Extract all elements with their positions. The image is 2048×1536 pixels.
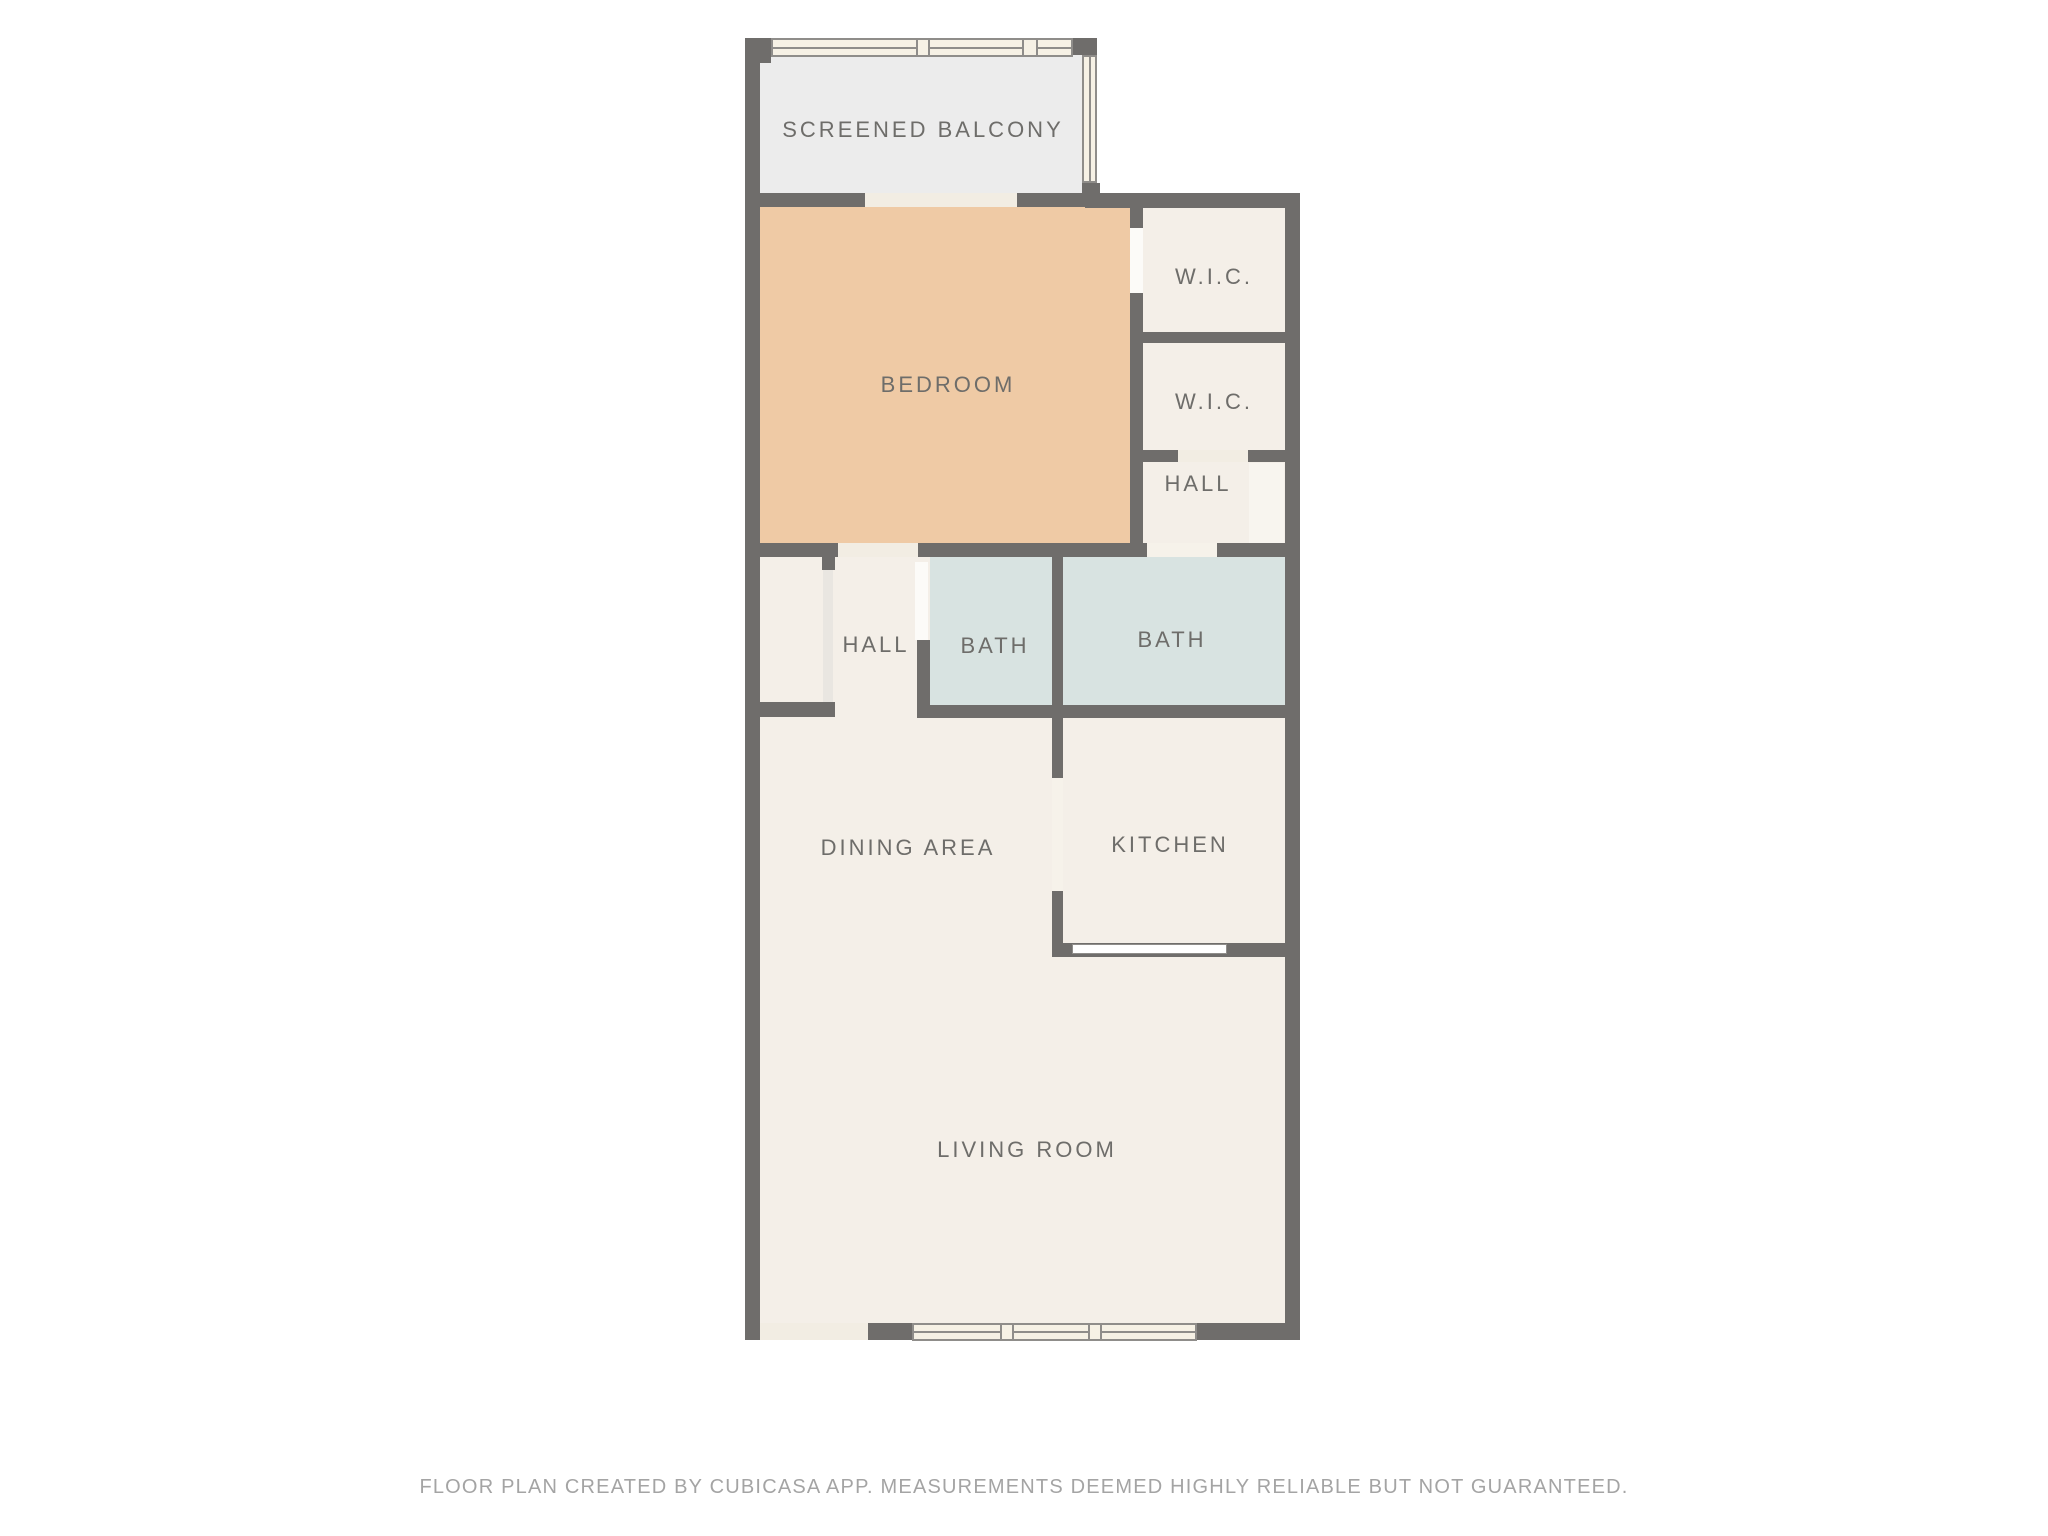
door-bedroom-opening [838, 543, 918, 557]
window-balcony-top [771, 38, 1073, 57]
hall-upper-door-leaf [1249, 463, 1284, 545]
wall-closet-nib [822, 543, 835, 570]
floor-plan-canvas: SCREENED BALCONY BEDROOM W.I.C. W.I.C. H… [0, 0, 2048, 1536]
wall-mid-right [1217, 543, 1300, 557]
room-label-wic-1: W.I.C. [1175, 264, 1253, 290]
wall-baths-bottom [917, 705, 1300, 718]
room-label-hall-upper: HALL [1164, 471, 1231, 497]
wall-bedroom-wic-nib [1130, 208, 1143, 228]
footer-disclaimer: FLOOR PLAN CREATED BY CUBICASA APP. MEAS… [0, 1476, 2048, 1499]
wall-wic2-bottom-left [1130, 450, 1178, 462]
wall-wic-divider [1130, 332, 1285, 343]
room-label-dining-area: DINING AREA [821, 835, 996, 861]
window-pane-line [1089, 57, 1091, 181]
wall-balcony-top-left-corner [760, 38, 771, 63]
room-label-bath-2: BATH [1137, 627, 1206, 653]
wall-right-outer [1285, 193, 1300, 1340]
door-wic1-leaf [1130, 228, 1143, 293]
door-bath1-leaf [915, 562, 928, 640]
door-closet-leaf [823, 570, 833, 702]
wall-left-outer [745, 38, 760, 1340]
wall-balcony-bottom-left [745, 193, 865, 207]
door-wic2-opening [1178, 450, 1248, 462]
wall-unit-top [1085, 193, 1300, 208]
window-balcony-right [1082, 55, 1097, 183]
wall-bottom-right-seg [1197, 1323, 1300, 1340]
wall-wic2-bottom-right [1248, 450, 1285, 462]
wall-bath-divider [1052, 555, 1063, 717]
room-label-bath-1: BATH [960, 633, 1029, 659]
door-entry-opening [760, 1323, 868, 1340]
kitchen-counter [1072, 944, 1227, 954]
wall-balcony-bottom-right [1017, 193, 1085, 207]
room-label-wic-2: W.I.C. [1175, 389, 1253, 415]
wall-balcony-top-right-post [1073, 38, 1097, 55]
door-bath2-opening [1147, 543, 1217, 557]
window-living-room [912, 1323, 1197, 1341]
room-label-screened-balcony: SCREENED BALCONY [782, 117, 1064, 143]
window-pane-line [914, 1331, 1195, 1333]
wall-bottom-left-seg [868, 1323, 912, 1340]
window-mullion [1022, 40, 1038, 55]
window-mullion [1088, 1325, 1102, 1339]
door-balcony-opening [865, 193, 1017, 207]
room-label-bedroom: BEDROOM [881, 372, 1016, 398]
wall-closet-bottom [745, 702, 835, 717]
room-label-living-room: LIVING ROOM [937, 1137, 1117, 1163]
window-mullion [916, 40, 930, 55]
room-fill-bath-1 [930, 557, 1052, 707]
window-mullion [1000, 1325, 1014, 1339]
wall-bedroom-wic-main [1130, 293, 1143, 543]
room-label-kitchen: KITCHEN [1111, 832, 1229, 858]
room-label-hall-lower: HALL [842, 632, 909, 658]
wall-kitchen-divider-top [1052, 718, 1063, 778]
wall-mid-center [918, 543, 1147, 557]
door-kitchen-opening [1052, 778, 1063, 891]
